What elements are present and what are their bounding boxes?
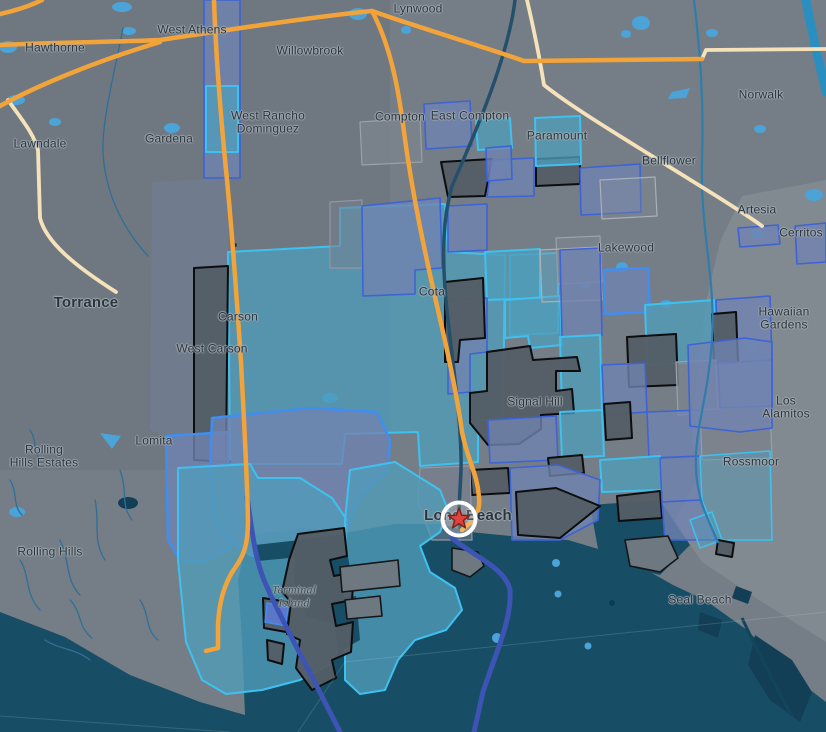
- location-marker[interactable]: [437, 497, 481, 541]
- base-map-svg: [0, 0, 826, 732]
- star-marker-icon: [437, 497, 481, 541]
- map-canvas[interactable]: LynwoodHawthorneWest AthensWillowbrookLa…: [0, 0, 826, 732]
